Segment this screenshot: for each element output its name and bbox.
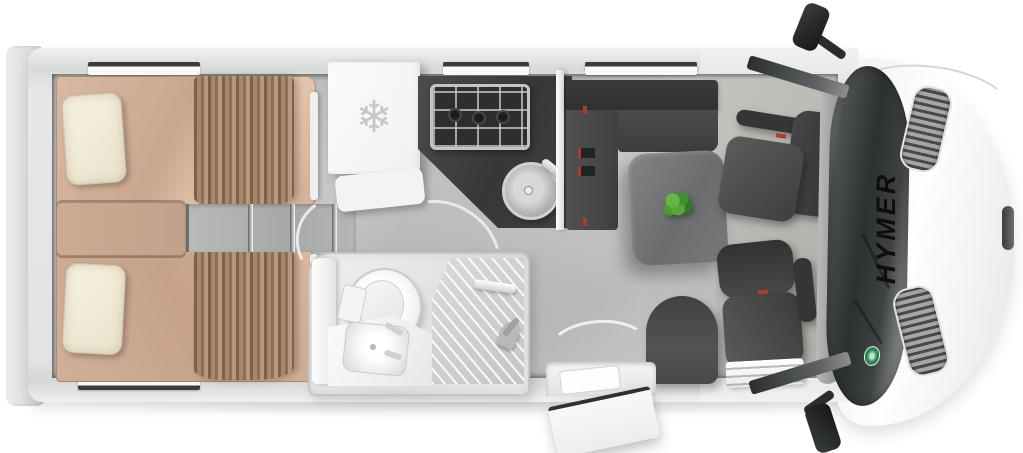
curtain-bottom <box>194 250 294 380</box>
window-top-kitchen <box>443 62 529 75</box>
seatbelt-tab <box>583 218 587 226</box>
pillow-top <box>61 92 127 186</box>
basin-drain <box>370 344 376 350</box>
swivel-seat-top-cushion <box>716 134 805 223</box>
plant <box>660 186 696 222</box>
sofa-seat-corner <box>618 110 718 152</box>
seatbelt-buckle <box>578 148 595 158</box>
step-line <box>248 204 253 252</box>
seatbelt-buckle <box>578 166 595 176</box>
hob-burner <box>472 111 486 125</box>
hob-burner <box>496 110 510 124</box>
brand-logo: HYMER <box>864 168 908 288</box>
snowflake-icon: ❄ <box>356 96 393 140</box>
bed-foot-trim-top <box>310 92 318 200</box>
curtain-top <box>194 76 294 208</box>
seat-accent <box>758 290 768 295</box>
fridge: ❄ <box>328 62 420 174</box>
seatbelt-tab <box>583 106 587 114</box>
sink-drain <box>524 186 533 195</box>
hob-burner <box>448 108 462 122</box>
window-top-lounge <box>585 62 697 75</box>
step-line <box>290 204 295 252</box>
floorplan-scene: ❄ <box>0 0 1023 453</box>
swivel-seat-bottom-backrest <box>715 238 796 300</box>
pillow-bottom <box>62 262 127 355</box>
step-edge <box>186 204 189 252</box>
swivel-seat-bottom-cushion <box>722 291 805 368</box>
window-top-rear <box>88 62 200 75</box>
partition-wall <box>556 70 564 230</box>
sofa-backrest <box>566 80 718 110</box>
bed-head-cushion <box>56 202 186 256</box>
side-marker <box>1002 206 1014 250</box>
single-seat <box>646 296 718 384</box>
